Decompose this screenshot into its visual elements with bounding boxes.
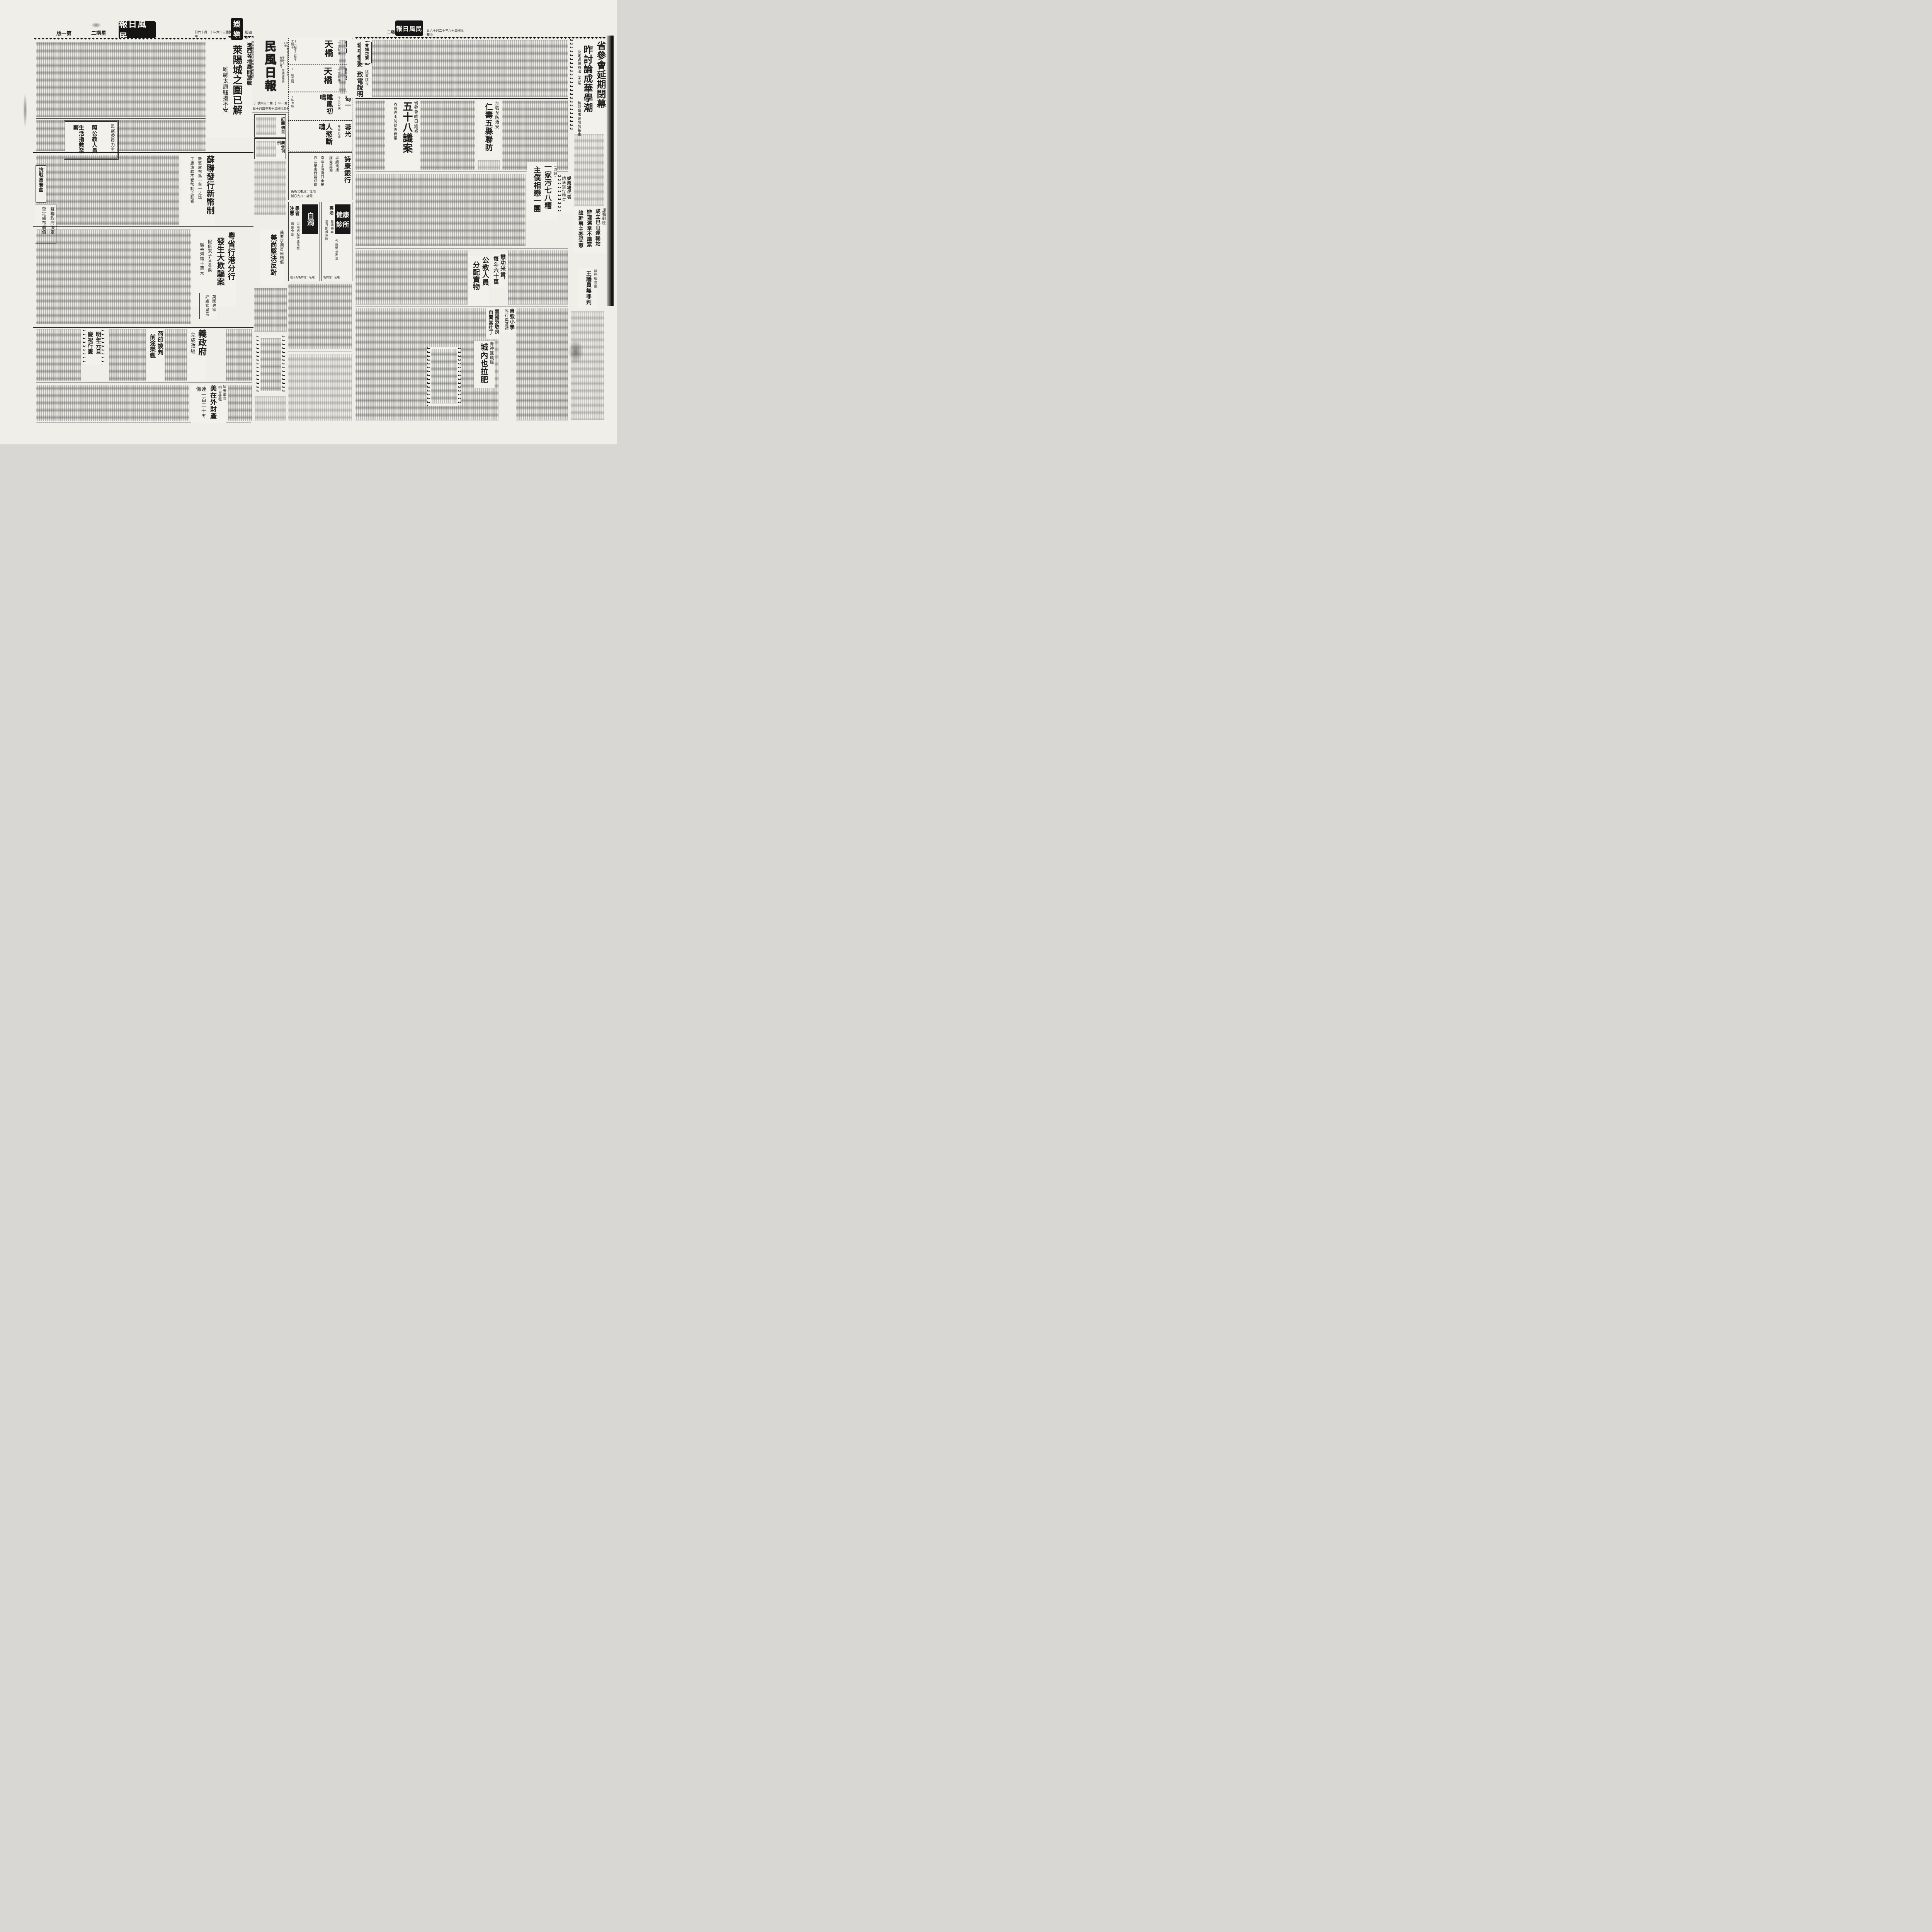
bank-address: 街新北都成：址地 — [291, 189, 316, 194]
yule-box: 娛樂場代表 請速撥付積欠 — [558, 175, 573, 213]
headline-block-wuzui: 毆死稅官案 王議員無罪判 — [578, 268, 597, 309]
kangzhan-title: 抗戰馬賽曲 — [39, 167, 43, 200]
headline-block-lianfang: 加強冬防治安 仁壽五縣聯防 — [478, 100, 500, 158]
band-rule — [33, 226, 253, 227]
left-page: 版一第 二期星 報日風民 日六十月二十年六十三國民華中 娛 樂 版四第 遼西各地… — [33, 18, 253, 423]
band-rule — [355, 98, 568, 99]
left-masthead-stamp: 報日風民 — [119, 22, 155, 38]
body-text — [109, 329, 146, 381]
jiancha-line3: 生活指數發薪 — [73, 125, 84, 155]
cinema-note: 今天公映 — [337, 125, 340, 147]
right-header-rule — [355, 37, 606, 40]
body-text — [36, 385, 189, 421]
headline-block-zhupu: （渝訊） 一家污七八糟 主僕相戀一團 — [527, 162, 557, 220]
entertainment-stamp-char-top: 娛 — [233, 19, 240, 29]
left-header-rule-2 — [228, 36, 253, 39]
yule-box-left-border — [558, 175, 561, 213]
left-weekday: 二期星 — [91, 29, 106, 36]
right-masthead-stamp: 報日風民 — [396, 21, 423, 36]
edge-line1: 加強剿匪 — [601, 208, 605, 226]
bank-ad: 詩康銀行 手續簡捷 匯兌靈通 南京上海漢口重慶 內江樂山西昌成都 街新北都成：址… — [288, 152, 352, 200]
us-property-kicker1: 留美軍官 — [222, 385, 226, 403]
headline-block-gongjiao: 公教人員 分配實物 — [469, 256, 489, 306]
lead-body-text — [372, 40, 568, 97]
headline-block-ziqiang: 自強小學 昨行奠基禮 — [501, 308, 515, 333]
cinema-name: 蓉光 — [344, 124, 350, 148]
showtimes: 十一點三點 — [291, 68, 294, 89]
body-text — [288, 284, 352, 349]
rule — [355, 306, 568, 306]
ad-text — [260, 338, 281, 391]
huaxu-box: 會場花絮 — [360, 42, 372, 63]
yue-sub2: 騙去港幣十萬元 — [200, 243, 204, 285]
laiyang-title: 萊陽城之圍已解 — [232, 45, 242, 122]
us-property-kicker2: 明日啓程 — [218, 386, 221, 404]
cinema-ad-shuyi: 蜀一 今天公映 雛鳳初鳴 五點七點 — [288, 92, 352, 121]
body-text — [508, 250, 568, 304]
jiancha-line2: 照公教人員 — [92, 125, 97, 155]
clinic-sub: 專治 — [329, 206, 333, 218]
xianzheng-box-left-border — [83, 329, 85, 365]
gongjiao-title2: 分配實物 — [472, 261, 479, 295]
scan-smudge — [23, 93, 27, 128]
uk-expert-line1: 英國專家 — [211, 295, 215, 316]
body-text — [36, 329, 81, 381]
body-text — [420, 100, 475, 170]
zhupu-title1: 一家污七八糟 — [544, 163, 551, 212]
film-title: 雛鳳初鳴 — [318, 94, 332, 118]
kangzhan-box: 抗戰馬賽曲 — [36, 165, 46, 202]
wuzui-kicker: 毆死稅官案 — [593, 269, 597, 291]
xianzheng-line1: 明年元旦 — [95, 332, 101, 362]
xianzheng-box: 明年元旦 慶祝行憲 — [83, 329, 104, 365]
clinic-line2: 三日斷根保險 — [325, 220, 328, 243]
sulian-sub1: 新舊盧布爲一與十之比 — [197, 157, 201, 215]
body-text — [165, 329, 187, 381]
us-property-sub: 達一百二十五億 — [196, 386, 206, 422]
clinic2-sub1: 患者 — [295, 206, 299, 219]
body-text — [355, 250, 468, 304]
price-table — [256, 117, 276, 135]
yule-box-line2: 請速撥付積欠 — [561, 176, 565, 210]
maogong-title2: 每斗六十萬 — [493, 256, 498, 287]
rule — [288, 352, 352, 352]
body-text — [254, 288, 287, 332]
cinema-ad-rongguang: 蓉光 今天公映 人慾斷魂 — [288, 121, 352, 151]
body-text — [288, 354, 352, 421]
body-text — [36, 42, 206, 117]
headline-block-italy: 義政府 完成改組 — [189, 328, 206, 381]
masthead-publisher: 發行人·民風報股份有限公司 — [279, 56, 284, 83]
edge-line3: 辦理選舉不講票 — [586, 209, 591, 250]
body-text — [36, 155, 179, 225]
body-text — [255, 396, 286, 421]
yunyang-line2: 自賣當壯丁 — [488, 310, 493, 338]
lianfang-title: 仁壽五縣聯防 — [485, 103, 492, 155]
jiancha-line1: 監察委員力主 — [111, 124, 115, 156]
uk-expert-line2: 評處女皇島 — [204, 295, 208, 316]
yue-title2: 發生大欺騙案 — [216, 237, 224, 291]
headline-block-yunyang: 雲陽張敬良 自賣當壯丁 — [486, 308, 500, 339]
ad-border-right — [458, 347, 461, 406]
showtimes: 十一點半二點半五點半 — [291, 40, 296, 62]
headline-block-sulian: 蘇聯發行新幣制 新舊盧布爲一與十之比 工農進款不受幣制之影響 — [181, 154, 215, 226]
bank-branches-2: 內江樂山西昌成都 — [313, 156, 316, 192]
right-masthead-stamp-text: 報日風民 — [396, 24, 422, 33]
rule — [36, 383, 252, 383]
left-header-rule — [33, 38, 226, 41]
showtimes: 五點七點 — [291, 95, 294, 117]
zhupu-title2: 主僕相戀一團 — [533, 166, 540, 215]
clinic-name-1: 健康 — [336, 209, 349, 219]
headline-block-heyin: 荷印談判 前途樂觀 — [148, 329, 164, 381]
wuzui-title: 王議員無罪判 — [586, 270, 591, 307]
yian-kicker: 省參會昨日通過 — [414, 100, 418, 137]
band-rule — [33, 327, 253, 328]
lead-title-1: 省參會延期閉幕 — [596, 41, 605, 122]
body-text — [355, 174, 526, 246]
clinic2-line1: 白濁初起徹底除根 — [296, 222, 299, 253]
huaxu-title: 會場花絮 — [364, 43, 368, 61]
body-text — [36, 230, 191, 324]
yian-sub: 內有巴山防務等要案 — [393, 102, 396, 148]
lead-sub-1: 決定處理辦法三大案 — [577, 50, 580, 93]
clinic2-address: 號十九街府總：址地 — [290, 276, 315, 279]
masthead-postal-line: 中華郵政登記認為新聞紙類 — [251, 41, 254, 86]
clinic-address: 街府總：址地 — [323, 276, 340, 279]
clinic2-name: 白濁 — [305, 212, 315, 226]
headline-block-yian: 省參會昨日通過 五十八議案 內有巴山防務等要案 — [386, 100, 419, 172]
scan-dark-edge — [607, 36, 614, 306]
edge-line2: 成立巴山運輸站 — [595, 209, 600, 249]
mei-oppose-title: 美尚堅決反對 — [269, 234, 276, 281]
cinema-name: 蜀一 — [344, 95, 350, 118]
body-text — [516, 308, 568, 420]
ziqiang-title: 自強小學 — [509, 308, 514, 331]
italy-title: 義政府 — [197, 329, 206, 358]
rule — [252, 112, 293, 112]
yian-title: 五十八議案 — [401, 101, 412, 158]
body-text — [574, 134, 604, 206]
film-title: 天橋 — [323, 67, 331, 89]
body-text — [355, 100, 385, 170]
body-text — [571, 311, 604, 420]
dachao-kicker: 張羣院長 — [364, 70, 368, 88]
body-text — [36, 120, 206, 151]
clinic2-name-block: 白濁 — [302, 204, 318, 234]
band-rule — [33, 152, 253, 153]
boxed-ad-bottom — [427, 347, 461, 406]
body-text — [254, 161, 286, 215]
ad-rate-title: 廣告刊例 — [276, 141, 284, 157]
body-text — [502, 100, 568, 170]
rule — [355, 248, 568, 248]
edge-headline-block: 加強剿匪 成立巴山運輸站 辦理選舉不講票 總幹事主委受懲 — [573, 207, 606, 253]
lead-left-border — [570, 39, 573, 130]
sulian-sub2: 工農進款不受幣制之影響 — [189, 157, 193, 219]
yue-sub1: 假借宋子文名義 — [207, 240, 212, 282]
zhupu-kicker: （渝訊） — [553, 164, 556, 187]
gongjiao-title1: 公教人員 — [481, 257, 488, 291]
rate-table — [256, 141, 276, 157]
bank-feature1: 手續簡捷 — [335, 156, 338, 180]
newspaper-scan: 版一第 二期星 報日風民 日六十月二十年六十三國民華中 娛 樂 版四第 遼西各地… — [0, 0, 617, 444]
bank-branches-1: 南京上海漢口重慶 — [320, 156, 323, 192]
clinic-name-2: 診所 — [336, 219, 349, 229]
cinema-note: 今天公映 — [337, 96, 340, 117]
heyin-title1: 荷印談判 — [157, 331, 163, 358]
dachao-title3: 致電說明 — [356, 71, 362, 97]
clinic-ad-baizhuo: 白濁 患者 注意 白濁初起徹底除根 限期全愈 號十九街府總：址地 — [288, 202, 320, 281]
clinic2-sub2: 注意 — [289, 206, 294, 219]
qingshen-title: 城內也拉肥 — [480, 343, 488, 386]
film-title: 人慾斷魂 — [318, 123, 332, 149]
bank-phone: 號〇九八：話電 — [291, 194, 313, 198]
headline-block-mei-oppose: 蘇要求德百億賠償 美尚堅決反對 — [260, 230, 284, 286]
masthead-issue-label: ）號四三二第（ — [254, 101, 276, 105]
heyin-title2: 前途樂觀 — [150, 334, 155, 361]
film-title: 天橋 — [323, 40, 332, 61]
boxed-ad — [257, 335, 285, 393]
uk-expert-box: 英國專家 評處女皇島 — [199, 293, 217, 319]
left-page-number: 版一第 — [56, 29, 71, 37]
clinic2-line2: 限期全愈 — [291, 222, 294, 245]
mei-oppose-kicker: 蘇要求德百億賠償 — [279, 230, 283, 267]
headline-block-laiyang: 遼西各地展開激戰 萊陽城之圍已解 雎縣太康騷擾不安 — [207, 41, 252, 138]
xianzheng-line2: 慶祝行憲 — [87, 332, 93, 362]
subscription-price-title: 訂閱價目 — [280, 117, 284, 135]
headline-block-qingshen: 青神匪風熾 城內也拉肥 — [474, 341, 495, 388]
masthead-title: 民風日報 — [263, 40, 275, 98]
lianfang-kicker: 加強冬防治安 — [495, 101, 499, 133]
xianzheng-box-right-border — [102, 329, 104, 365]
bank-feature2: 匯兌靈通 — [328, 156, 332, 180]
clinic-name-block: 健康 診所 — [335, 204, 350, 234]
maogong-title1: 懋功米貴， — [500, 254, 505, 286]
us-property-title: 美在外財產 — [209, 385, 216, 421]
body-text — [226, 329, 252, 381]
ad-border-left — [427, 347, 430, 406]
right-date: 日六十月二十年六十三國民華中 — [427, 29, 465, 37]
laiyang-subtitle: 雎縣太康騷擾不安 — [223, 66, 228, 124]
ad-border-left — [257, 335, 259, 393]
ziqiang-sub: 昨行奠基禮 — [504, 309, 508, 331]
yule-box-line1: 娛樂場代表 — [567, 176, 571, 205]
ad-rate-box: 廣告刊例 — [254, 138, 286, 159]
lead-title-2: 昨討論成華學潮 — [583, 45, 592, 126]
body-text — [228, 385, 252, 421]
sulian-title: 蘇聯發行新幣制 — [206, 155, 214, 221]
body-text — [478, 160, 500, 170]
masthead-founded-line: 日十月四年五十三國民於刊創 — [253, 107, 293, 111]
ad-text — [431, 349, 457, 403]
bank-name: 詩康銀行 — [343, 156, 350, 190]
headline-block-us-property: 留美軍官 明日啓程 美在外財產 達一百二十五億 — [191, 384, 226, 423]
right-page: 二期星 報日風民 日六十月二十年六十三國民華中 省參會延期閉幕 昨討論成華學潮 … — [355, 18, 607, 423]
italy-sub: 完成改組 — [190, 332, 195, 356]
edge-line4: 總幹事主委受懲 — [578, 210, 583, 250]
yunyang-line1: 雲陽張敬良 — [495, 309, 499, 337]
yue-title1: 粵省行港分行 — [227, 232, 235, 285]
subscription-price-box: 訂閱價目 — [254, 114, 286, 138]
qingshen-kicker: 青神匪風熾 — [490, 342, 494, 368]
headline-block-maogong: 懋功米貴， 每斗六十萬 — [491, 253, 506, 288]
body-text — [339, 40, 346, 94]
rule — [36, 118, 206, 119]
clinic-line3: 包皮過長割治 — [335, 239, 338, 262]
ad-border-right — [282, 335, 285, 393]
clinic-ad-jiankang: 健康 診所 專治 白濁梅毒 三日斷根保險 包皮過長割治 街府總：址地 — [321, 202, 352, 281]
clinic-line1: 白濁梅毒 — [330, 220, 333, 239]
